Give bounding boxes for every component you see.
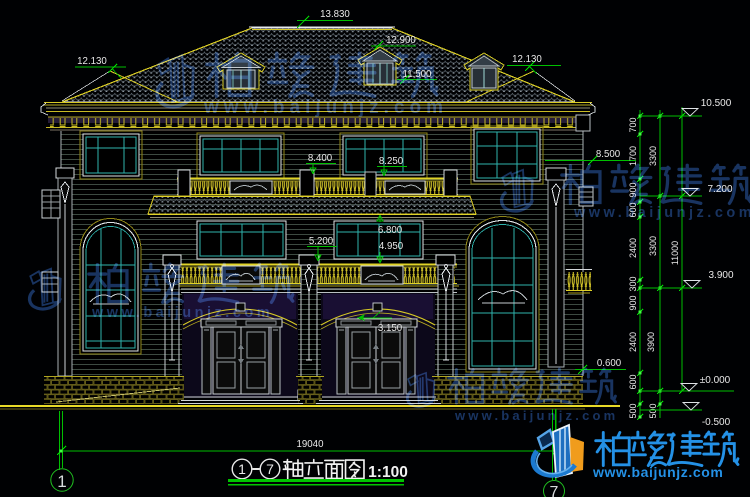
svg-text:1:100: 1:100 bbox=[368, 464, 408, 481]
svg-text:www.baijunjz.com: www.baijunjz.com bbox=[573, 205, 750, 221]
svg-text:1: 1 bbox=[57, 472, 66, 491]
svg-text:600: 600 bbox=[628, 374, 638, 389]
svg-text:6.800: 6.800 bbox=[378, 225, 403, 236]
svg-text:±0.000: ±0.000 bbox=[700, 375, 731, 386]
svg-text:7: 7 bbox=[266, 461, 274, 477]
svg-text:3.900: 3.900 bbox=[708, 270, 733, 281]
svg-text:5.200: 5.200 bbox=[309, 236, 334, 247]
svg-text:1: 1 bbox=[238, 461, 246, 477]
svg-text:0.600: 0.600 bbox=[597, 358, 622, 369]
svg-text:19040: 19040 bbox=[297, 439, 325, 450]
svg-text:1700: 1700 bbox=[628, 146, 638, 166]
svg-text:www.baijunjz.com: www.baijunjz.com bbox=[454, 408, 618, 423]
svg-text:www.baijunjz.com: www.baijunjz.com bbox=[203, 97, 448, 118]
svg-text:12.900: 12.900 bbox=[386, 35, 416, 46]
svg-text:12.130: 12.130 bbox=[77, 56, 107, 67]
svg-text:500: 500 bbox=[628, 403, 638, 418]
svg-text:11000: 11000 bbox=[670, 241, 680, 265]
svg-text:8.250: 8.250 bbox=[379, 156, 404, 167]
svg-text:300: 300 bbox=[628, 276, 638, 291]
svg-text:3.150: 3.150 bbox=[378, 323, 403, 334]
svg-text:www.baijunjz.com: www.baijunjz.com bbox=[592, 464, 723, 480]
svg-text:8.400: 8.400 bbox=[308, 153, 333, 164]
svg-text:900: 900 bbox=[628, 295, 638, 310]
svg-text:10.500: 10.500 bbox=[701, 98, 732, 109]
svg-text:4.950: 4.950 bbox=[379, 241, 404, 252]
svg-text:3300: 3300 bbox=[648, 146, 658, 166]
svg-text:13.830: 13.830 bbox=[320, 9, 350, 20]
svg-text:8.500: 8.500 bbox=[596, 149, 621, 160]
svg-text:700: 700 bbox=[628, 117, 638, 132]
svg-text:3900: 3900 bbox=[646, 332, 656, 352]
svg-text:-0.500: -0.500 bbox=[702, 417, 731, 428]
svg-text:www.baijunjz.com: www.baijunjz.com bbox=[91, 305, 273, 321]
svg-text:12.130: 12.130 bbox=[512, 54, 542, 65]
svg-text:500: 500 bbox=[648, 403, 658, 418]
svg-text:2400: 2400 bbox=[628, 238, 638, 258]
svg-text:7: 7 bbox=[550, 484, 559, 497]
svg-text:2400: 2400 bbox=[628, 332, 638, 352]
svg-text:3300: 3300 bbox=[648, 236, 658, 256]
